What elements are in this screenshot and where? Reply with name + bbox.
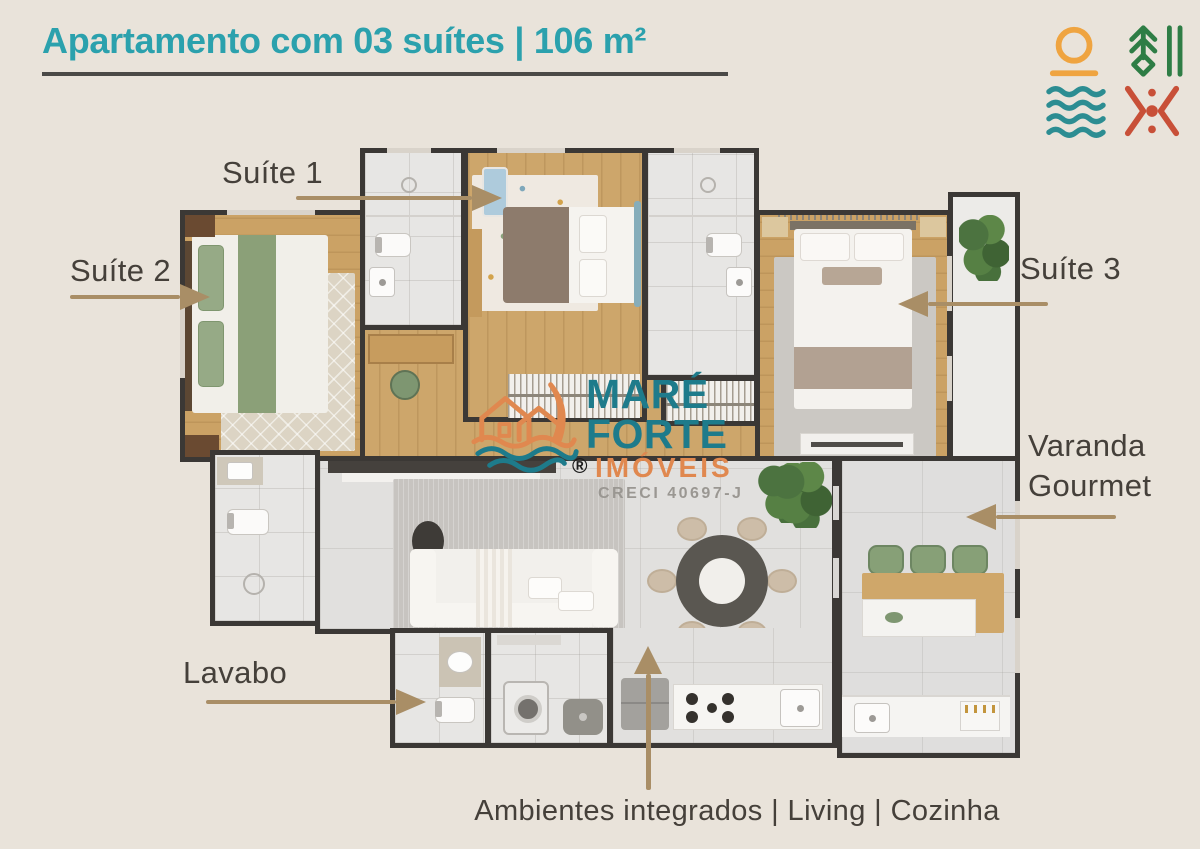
suite3-arrow <box>928 302 1048 306</box>
window <box>180 306 185 378</box>
shower-head <box>243 573 265 595</box>
suite3-pillow <box>800 233 850 261</box>
varanda-arrowhead <box>966 504 996 530</box>
brand-logo-grid <box>1038 22 1190 142</box>
suite2-bed-headboard <box>185 241 192 411</box>
bar-stool <box>910 545 946 575</box>
suite1-label: Suíte 1 <box>222 155 323 191</box>
integrated-rooms-label: Ambientes integrados | Living | Cozinha <box>437 795 1037 828</box>
toilet <box>227 509 269 535</box>
suite1-desk <box>468 229 482 317</box>
suite1-duvet <box>503 207 569 303</box>
gourmet-counter-marble <box>862 599 976 637</box>
burner <box>722 693 734 705</box>
lavabo-counter <box>439 637 481 687</box>
sofa-pillow <box>528 577 562 599</box>
toilet <box>435 697 475 723</box>
integrated-arrow <box>646 674 651 790</box>
suite3-accent-pillow <box>822 267 882 285</box>
varanda-gourmet-room <box>837 456 1020 758</box>
sofa-armrest <box>592 549 618 627</box>
sofa-armrest <box>410 549 436 627</box>
page-title: Apartamento com 03 suítes | 106 m² <box>42 20 646 62</box>
suite2-bed <box>192 235 328 413</box>
burner-knob <box>707 703 717 713</box>
dining-chair <box>677 517 707 541</box>
suite2-pillow <box>198 321 224 387</box>
lavabo-room <box>390 628 490 748</box>
varanda-arrow <box>996 515 1116 519</box>
floor-plan-page: Apartamento com 03 suítes | 106 m² <box>0 0 1200 849</box>
watermark-registered-mark: ® <box>572 456 587 477</box>
suite1-pillow <box>579 215 607 253</box>
suite3-nightstand <box>762 217 788 237</box>
dining-chair <box>647 569 677 593</box>
refrigerator <box>621 678 669 730</box>
dining-table <box>676 535 768 627</box>
office-desk <box>368 334 454 364</box>
suite3-nightstand <box>920 217 946 237</box>
suite3-room <box>755 210 952 466</box>
shower-drain <box>700 177 716 193</box>
shower-glass-divider <box>365 215 461 217</box>
bar-stool <box>868 545 904 575</box>
office-chair <box>390 370 420 400</box>
window <box>1015 501 1020 569</box>
mare-forte-watermark: MARÉ FORTE ® IMÓVEIS CRECI 40697-J <box>468 374 768 506</box>
geometric-pattern-icon <box>1114 82 1190 142</box>
suite3-pillow <box>854 233 904 261</box>
suite1-bed <box>503 207 637 303</box>
lavabo-arrowhead <box>396 689 426 715</box>
sofa-throw-blanket <box>476 549 512 627</box>
burner <box>722 711 734 723</box>
window <box>227 210 315 215</box>
varanda-sink-counter <box>842 695 1010 737</box>
basin <box>227 462 253 480</box>
sofa <box>410 549 618 627</box>
suite3-bed <box>794 229 912 409</box>
suite2-arrow <box>70 295 180 299</box>
burner <box>686 693 698 705</box>
suite2-label: Suíte 2 <box>70 253 171 289</box>
glass-door-partition <box>833 458 839 634</box>
window <box>497 148 565 153</box>
tv-screen <box>811 442 903 447</box>
window <box>387 148 431 153</box>
waves-icon <box>1038 82 1114 142</box>
varanda-label-line2: Gourmet <box>1028 466 1151 506</box>
window <box>947 356 952 401</box>
watermark-houses-icon <box>468 378 586 478</box>
shower-drain <box>401 177 417 193</box>
suite1-arrow <box>296 196 472 200</box>
rack-hooks <box>965 705 995 713</box>
bathroom-sink <box>726 267 752 297</box>
laundry-shelf <box>497 635 561 645</box>
toilet <box>706 233 742 257</box>
laundry-basket <box>563 699 603 735</box>
laundry-room <box>486 628 612 748</box>
suite3-label: Suíte 3 <box>1020 251 1121 287</box>
suite2-bathroom <box>360 148 466 330</box>
burner <box>686 711 698 723</box>
fruit-bowl <box>885 612 903 623</box>
basket-knob <box>579 713 587 721</box>
title-underline <box>42 72 728 76</box>
potted-plant <box>959 215 1009 281</box>
watermark-name-mare: MARÉ <box>586 374 709 415</box>
integrated-arrowhead <box>634 646 662 674</box>
bar-stool <box>952 545 988 575</box>
suite2-room <box>180 210 365 462</box>
suite2-arrowhead <box>180 284 210 310</box>
watermark-creci: CRECI 40697-J <box>598 486 743 502</box>
suite1-arrowhead <box>472 185 502 211</box>
kitchen-counter <box>673 684 823 730</box>
watermark-imoveis: IMÓVEIS <box>595 454 733 482</box>
suite1-pillow <box>579 259 607 297</box>
bathroom-sink <box>369 267 395 297</box>
varanda-gourmet-label: Varanda Gourmet <box>1028 426 1151 506</box>
window <box>1015 618 1020 673</box>
pine-tree-icon <box>1114 22 1190 82</box>
suite3-throw-band <box>794 347 912 389</box>
suite2-nightstand <box>185 215 215 237</box>
shower-glass-divider <box>648 215 754 217</box>
utensil-rack <box>960 701 1000 731</box>
suite3-arrowhead <box>898 291 928 317</box>
lavabo-label: Lavabo <box>183 655 287 691</box>
social-bathroom <box>210 450 320 626</box>
window <box>674 148 720 153</box>
washer-door <box>514 695 542 723</box>
watermark-name-forte: FORTE <box>586 414 727 455</box>
dining-chair <box>767 569 797 593</box>
dining-table-top <box>699 558 745 604</box>
glass-pane <box>833 486 839 520</box>
suite3-curtain <box>778 215 922 220</box>
potted-plant <box>770 462 832 528</box>
kitchen-sink <box>780 689 820 727</box>
suite3-tv-console <box>800 433 914 455</box>
basin <box>447 651 473 673</box>
suite1-bathroom <box>643 148 759 380</box>
varanda-sink <box>854 703 890 733</box>
glass-pane <box>833 558 839 598</box>
fridge-handle <box>621 702 669 704</box>
suite2-bed-runner <box>238 235 276 413</box>
suite1-headboard-bench <box>634 201 641 307</box>
suite3-terrace <box>948 192 1020 464</box>
sun-horizon-icon <box>1038 22 1114 82</box>
cooktop <box>682 689 744 727</box>
varanda-label-line1: Varanda <box>1028 426 1151 466</box>
sofa-pillow <box>558 591 594 611</box>
washing-machine <box>503 681 549 735</box>
toilet <box>375 233 411 257</box>
vanity-counter <box>217 457 263 485</box>
lavabo-arrow <box>206 700 396 704</box>
